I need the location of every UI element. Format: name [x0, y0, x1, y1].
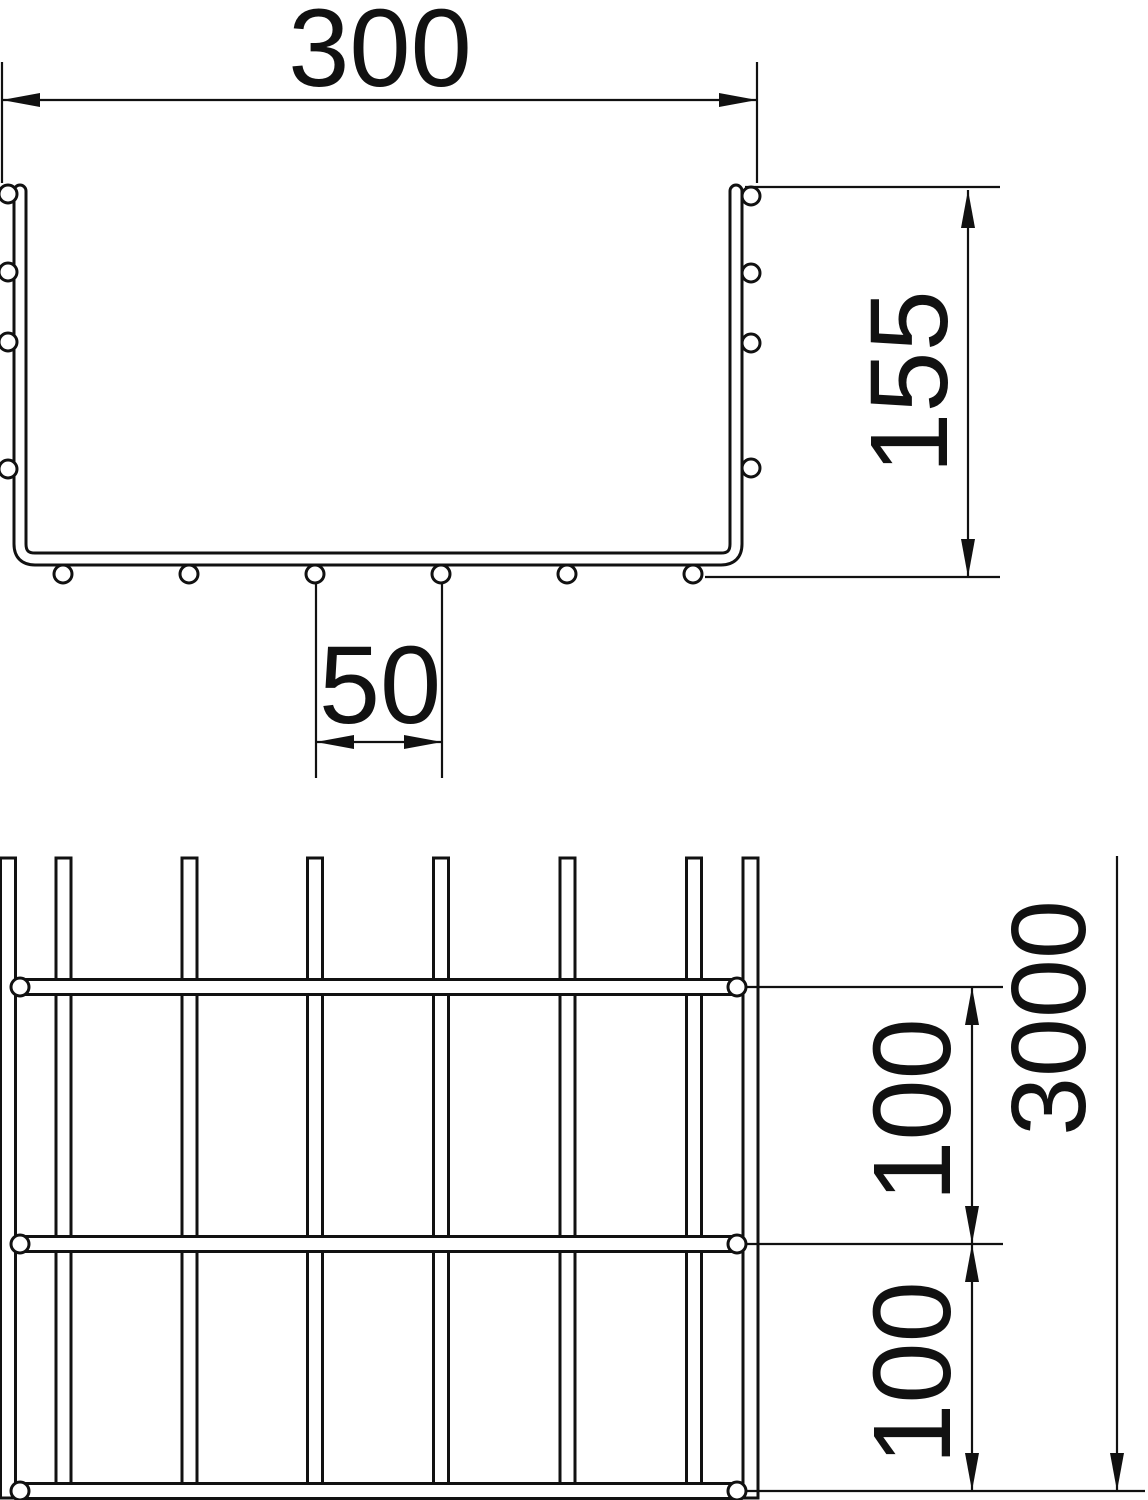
rung-body [20, 980, 737, 995]
cable-tray-technical-drawing: 300 [0, 0, 1148, 1500]
rung-end [728, 1482, 746, 1500]
dim-rung-spacing-100-upper: 100 [851, 987, 979, 1244]
rung-end [11, 1235, 29, 1253]
tray-u-profile [20, 191, 736, 559]
wire-cross-section [742, 264, 760, 282]
rung-body [20, 1484, 737, 1499]
profile-band-core [20, 191, 736, 559]
cross-rung [11, 1482, 746, 1500]
longitudinal-wire [687, 858, 702, 1498]
arrowhead-up [961, 190, 975, 228]
dim-height-155: 155 [848, 190, 975, 577]
arrowhead-down [1110, 1453, 1124, 1491]
wire-cross-section [0, 263, 17, 281]
cross-section-view: 300 [0, 0, 1000, 778]
longitudinal-wire [182, 858, 197, 1498]
longitudinal-wire [560, 858, 575, 1498]
side-rail-left [1, 858, 16, 1498]
rung-body [20, 1237, 737, 1252]
wire-cross-section [0, 185, 17, 203]
bottom-wires [54, 565, 702, 583]
wire-cross-section [180, 565, 198, 583]
cross-rung [11, 1235, 746, 1253]
arrowhead-up [965, 1244, 979, 1282]
dim-label-rung-spacing-lower: 100 [851, 1281, 974, 1465]
profile-band-outline [20, 191, 736, 559]
arrowhead-down [965, 1206, 979, 1244]
cross-rung [11, 978, 746, 996]
cross-rungs [11, 978, 746, 1500]
wire-cross-section [54, 565, 72, 583]
rung-end [11, 1482, 29, 1500]
technical-drawing-page: 300 [0, 0, 1148, 1500]
wire-cross-section [684, 565, 702, 583]
rung-end [11, 978, 29, 996]
dim-rung-spacing-100-lower: 100 [851, 1244, 979, 1491]
dim-label-rung-spacing-upper: 100 [851, 1018, 974, 1202]
dim-label-width: 300 [288, 0, 472, 110]
arrowhead-left [2, 93, 40, 107]
wire-cross-section [742, 459, 760, 477]
longitudinal-wires [1, 858, 759, 1498]
wire-cross-section [742, 334, 760, 352]
arrowhead-right [719, 93, 757, 107]
rung-end [728, 978, 746, 996]
side-wires-right [742, 187, 760, 477]
dim-label-height: 155 [848, 290, 971, 474]
rung-end [728, 1235, 746, 1253]
wire-cross-section [432, 565, 450, 583]
dim-label-length: 3000 [990, 900, 1108, 1136]
longitudinal-wire [56, 858, 71, 1498]
longitudinal-wire [308, 858, 323, 1498]
plan-view: 100 100 3000 [1, 856, 1146, 1500]
wire-cross-section [558, 565, 576, 583]
dim-length-3000: 3000 [990, 856, 1124, 1491]
wire-cross-section [306, 565, 324, 583]
side-rail-right [743, 858, 758, 1498]
wire-cross-section [0, 333, 17, 351]
dim-width-300: 300 [2, 0, 757, 183]
dim-spacing-50: 50 [316, 584, 442, 778]
dim-label-spacing: 50 [319, 624, 441, 747]
wire-cross-section [742, 187, 760, 205]
arrowhead-down [961, 539, 975, 577]
longitudinal-wire [434, 858, 449, 1498]
wire-cross-section [0, 460, 17, 478]
